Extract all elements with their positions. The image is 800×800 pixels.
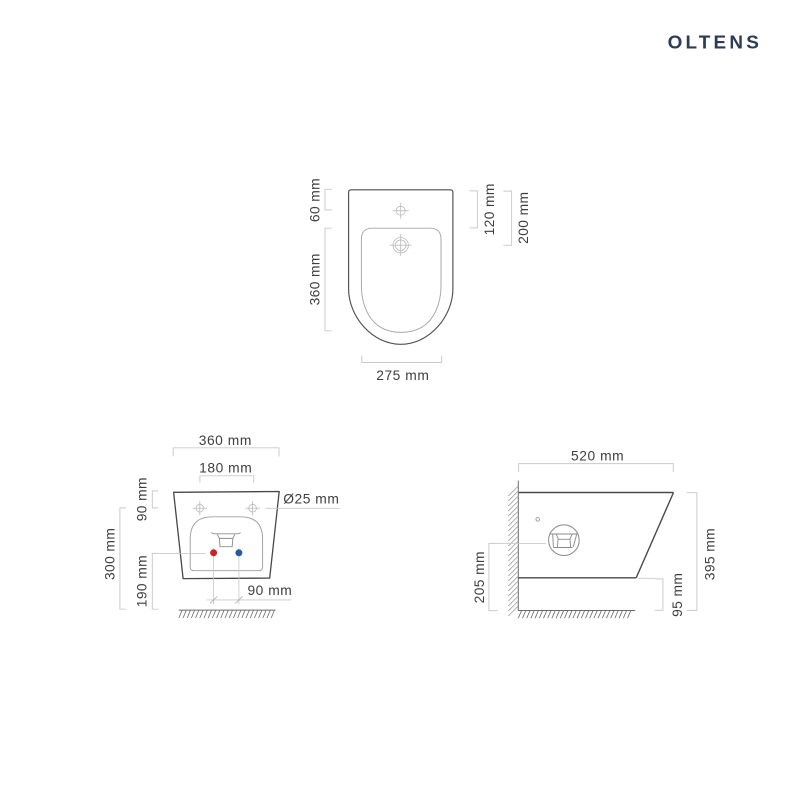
svg-text:200 mm: 200 mm xyxy=(516,192,531,244)
svg-text:OLTENS: OLTENS xyxy=(668,33,762,54)
svg-text:205 mm: 205 mm xyxy=(472,551,487,603)
svg-text:120 mm: 120 mm xyxy=(482,183,497,235)
svg-text:90 mm: 90 mm xyxy=(134,477,149,521)
svg-text:Ø25 mm: Ø25 mm xyxy=(283,492,339,507)
svg-text:190 mm: 190 mm xyxy=(134,555,149,607)
svg-text:275 mm: 275 mm xyxy=(376,368,429,383)
svg-text:90 mm: 90 mm xyxy=(247,583,292,598)
svg-text:60 mm: 60 mm xyxy=(308,178,323,222)
svg-text:180 mm: 180 mm xyxy=(199,460,252,475)
svg-text:520 mm: 520 mm xyxy=(571,449,624,464)
svg-text:395 mm: 395 mm xyxy=(702,528,717,580)
svg-text:360 mm: 360 mm xyxy=(308,253,323,305)
svg-text:95 mm: 95 mm xyxy=(670,573,685,617)
svg-text:300 mm: 300 mm xyxy=(103,528,118,580)
svg-text:360 mm: 360 mm xyxy=(199,433,252,448)
